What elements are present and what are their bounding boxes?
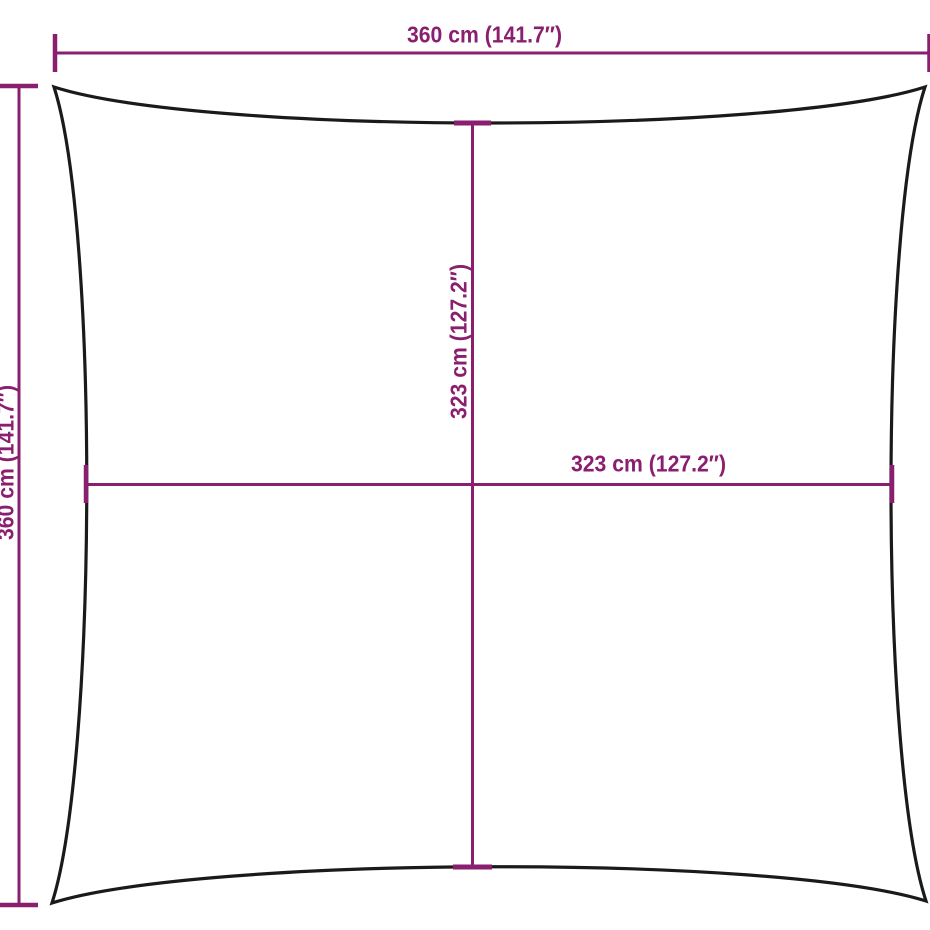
svg-text:323 cm (127.2″): 323 cm (127.2″) [571, 451, 726, 477]
svg-text:360 cm (141.7″): 360 cm (141.7″) [407, 21, 562, 47]
svg-text:360 cm (141.7″): 360 cm (141.7″) [0, 385, 19, 540]
svg-text:323 cm (127.2″): 323 cm (127.2″) [446, 264, 472, 419]
